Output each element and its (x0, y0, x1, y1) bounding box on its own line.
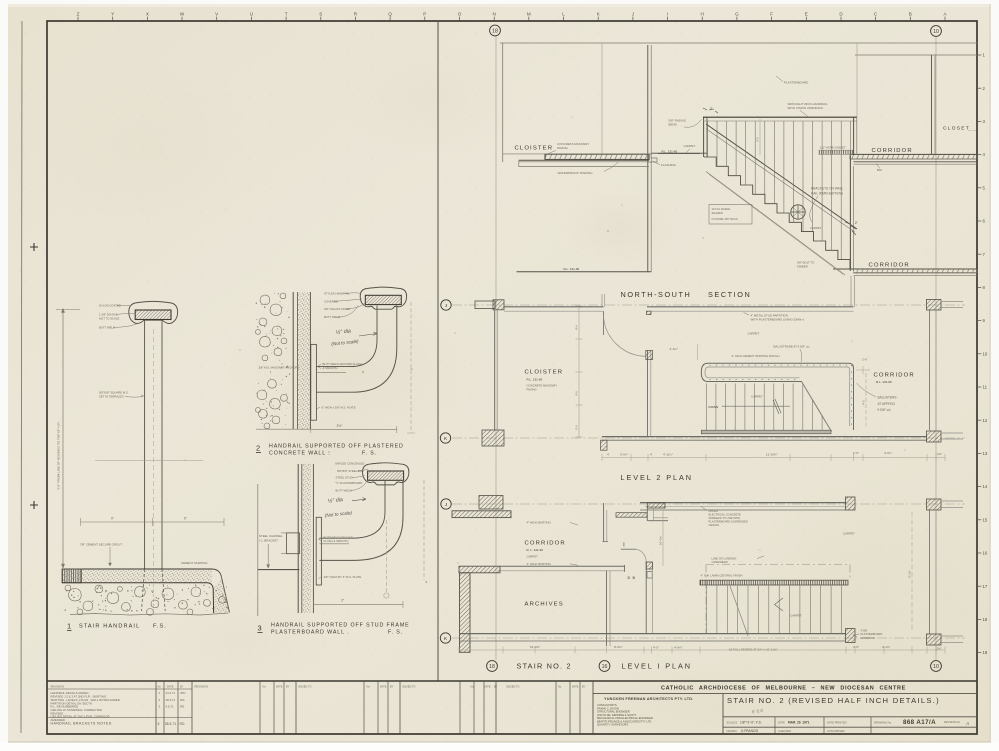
svg-text:CONCRETE WALL .: CONCRETE WALL . (269, 451, 331, 457)
svg-text:KIMBER: KIMBER (797, 264, 808, 268)
svg-text:3½": 3½" (337, 424, 344, 428)
svg-text:CORRIDOR: CORRIDOR (872, 148, 913, 154)
svg-text:BRACKETS ON WALL: BRACKETS ON WALL (811, 187, 844, 191)
svg-text:16: 16 (602, 664, 608, 670)
svg-text:T: T (285, 11, 288, 16)
svg-text:FLASHING: FLASHING (661, 163, 677, 167)
svg-text:10: 10 (933, 664, 939, 670)
svg-text:8'-6⅝": 8'-6⅝" (614, 645, 622, 649)
svg-text:QUANTITY SURVEYORS: QUANTITY SURVEYORS (597, 723, 628, 727)
svg-text:9": 9" (184, 517, 187, 521)
svg-text:SECTION: SECTION (708, 290, 751, 299)
svg-text:BUTT WELD: BUTT WELD (336, 489, 352, 493)
svg-text:2: 2 (256, 444, 260, 453)
svg-text:16 FUL RADIAL: 16 FUL RADIAL (712, 207, 732, 211)
svg-text:13: 13 (983, 451, 988, 456)
svg-text:4" HIGH CEMENT SKIRTING ROU: 4" HIGH CEMENT SKIRTING ROUGH (732, 354, 780, 358)
svg-text:4"(W): 4"(W) (861, 629, 868, 633)
svg-text:4" HIGH SKIRTING: 4" HIGH SKIRTING (527, 562, 551, 566)
svg-text:HANDRAIL BRACKETS NOTED: HANDRAIL BRACKETS NOTED (51, 722, 112, 726)
svg-text:4: 4 (158, 722, 160, 726)
svg-text:1/2" HOPE GASKET: 1/2" HOPE GASKET (820, 145, 846, 149)
svg-text:D.FRANCIS: D.FRANCIS (741, 729, 758, 733)
svg-text:D B: D B (628, 576, 636, 580)
svg-text:18: 18 (492, 28, 498, 34)
svg-text:STAIR NO. 2: STAIR NO. 2 (517, 662, 572, 671)
svg-text:11'-10⅛": 11'-10⅛" (766, 453, 778, 457)
svg-text:RD: RD (180, 705, 184, 709)
svg-text:9 5/8" c/c: 9 5/8" c/c (878, 408, 892, 412)
svg-text:RD: RD (180, 722, 185, 726)
svg-text:18: 18 (983, 617, 988, 622)
svg-text:16 FULL RISERS AT 9⅝" =: 16 FULL RISERS AT 9⅝" = 11'-11⅝" (729, 648, 777, 652)
svg-text:DATE: DATE (167, 686, 174, 689)
svg-text:CEMENT SKIRTING: CEMENT SKIRTING (181, 561, 208, 565)
svg-text:ISSUED TO: ISSUED TO (402, 686, 415, 689)
svg-text:2⅝": 2⅝" (937, 646, 942, 650)
svg-text:NORTH-SOUTH: NORTH-SOUTH (621, 290, 692, 299)
svg-text:CHECKED: CHECKED (778, 729, 791, 733)
svg-text:A: A (965, 721, 969, 726)
svg-text:4'-6: 4'-6 (862, 400, 866, 405)
svg-text:Y: Y (111, 11, 114, 16)
svg-text:Q: Q (388, 11, 392, 16)
svg-text:AUTHORISED: AUTHORISED (827, 729, 845, 733)
svg-text:STAIR HANDRAIL: STAIR HANDRAIL (79, 624, 140, 630)
svg-text:PAVING: PAVING (557, 146, 569, 150)
svg-text:FLUSH & SMOOTH: FLUSH & SMOOTH (324, 539, 349, 543)
svg-text:AT APPROX: AT APPROX (878, 402, 897, 406)
svg-text:DRAWING No.: DRAWING No. (874, 720, 892, 724)
svg-text:BEND: BEND (669, 123, 678, 127)
svg-text:H: H (701, 11, 704, 16)
svg-text:CLOISTER: CLOISTER (525, 370, 564, 376)
svg-text:DATE: DATE (484, 686, 491, 689)
svg-text:6'-1⅝: 6'-1⅝ (908, 570, 912, 578)
svg-text:F.S.: F.S. (153, 624, 167, 630)
svg-text:14.4.71: 14.4.71 (166, 691, 176, 695)
svg-text:P: P (423, 11, 426, 16)
svg-text:4'-1⅝": 4'-1⅝" (882, 645, 890, 649)
svg-text:LEVEL 2 PLAN: LEVEL 2 PLAN (621, 473, 693, 482)
svg-text:BLK: BLK (877, 168, 882, 172)
svg-text:16: 16 (983, 551, 988, 556)
svg-text:4'-0": 4'-0" (853, 645, 859, 649)
svg-text:3'-0: 3'-0 (756, 137, 760, 142)
svg-text:REVISION: REVISION (195, 685, 208, 689)
svg-text:DRAWN: DRAWN (727, 729, 737, 733)
svg-text:15: 15 (983, 517, 988, 522)
svg-text:1: 1 (67, 622, 71, 631)
svg-text:4'-11¾": 4'-11¾" (663, 453, 673, 457)
svg-text:10'-6¾: 10'-6¾ (659, 536, 663, 545)
svg-text:ISSUED TO: ISSUED TO (506, 686, 519, 689)
svg-text:WITH PLASTERBOARD LINING (D: WITH PLASTERBOARD LINING (DWN+) (751, 318, 804, 322)
svg-text:L: L (562, 11, 565, 16)
svg-text:HANDRAIL SUPPORTED OFF P: HANDRAIL SUPPORTED OFF PLASTERED (269, 444, 404, 450)
svg-text:DATE PRINTED: DATE PRINTED (827, 720, 847, 724)
svg-text:G: G (735, 11, 739, 16)
svg-text:SET IN TERRAZZO: SET IN TERRAZZO (99, 395, 125, 399)
svg-text:12: 12 (983, 418, 988, 423)
svg-text:JPD: JPD (180, 691, 185, 695)
svg-text:6" HIGH x 3/8" M.S. PLATE: 6" HIGH x 3/8" M.S. PLATE (322, 405, 356, 409)
svg-text:4'-6: 4'-6 (575, 391, 579, 396)
svg-text:S: S (319, 11, 322, 16)
svg-text:CARPET: CARPET (843, 532, 855, 536)
svg-text:28.5.71: 28.5.71 (165, 722, 176, 726)
svg-text:CONSULTANTS: CONSULTANTS (597, 703, 617, 707)
svg-text:3: 3 (258, 624, 262, 633)
svg-text:I: I (667, 11, 668, 16)
svg-text:14: 14 (983, 484, 988, 489)
svg-text:CATHOLIC ARCHDIOCESE OF: CATHOLIC ARCHDIOCESE OF MELBOURNE – NEW … (661, 685, 906, 691)
svg-text:4'-0": 4'-0" (653, 646, 659, 650)
svg-text:CARPET: CARPET (810, 226, 822, 230)
svg-text:OUTSIDE 135° BACK: OUTSIDE 135° BACK (712, 217, 739, 221)
svg-text:OVERHEAD: OVERHEAD (712, 560, 728, 564)
svg-text:16'-0⅜": 16'-0⅜" (530, 645, 540, 649)
svg-text:BUTT WELD: BUTT WELD (99, 326, 115, 330)
svg-text:PAVING: PAVING (527, 387, 537, 391)
svg-text:PLASTERBOARD: PLASTERBOARD (861, 632, 883, 636)
svg-text:3'-0¾": 3'-0¾" (620, 453, 628, 457)
svg-text:NOT TO SCALE: NOT TO SCALE (99, 316, 119, 320)
svg-text:4'-6¾": 4'-6¾" (670, 347, 678, 351)
svg-text:B: B (909, 11, 912, 16)
svg-text:½" PLASTERBOARD: ½" PLASTERBOARD (336, 481, 363, 485)
svg-text:3/8" THICK BY 6" M.S. PLATE: 3/8" THICK BY 6" M.S. PLATE (324, 575, 362, 579)
svg-text:CARPET: CARPET (751, 395, 763, 399)
svg-text:CORRIDOR: CORRIDOR (869, 263, 910, 269)
svg-text:4" THK LAMIN CENTRAL FINISH: 4" THK LAMIN CENTRAL FINISH (701, 573, 743, 577)
svg-text:11: 11 (983, 385, 988, 390)
svg-text:CARPET: CARPET (527, 555, 539, 559)
svg-text:W: W (180, 11, 185, 16)
svg-text:CARPET: CARPET (748, 332, 760, 336)
svg-text:U: U (250, 11, 253, 16)
svg-text:REVISION: REVISION (51, 685, 64, 689)
svg-text:4'-0¾": 4'-0¾" (884, 451, 892, 455)
svg-text:SCREEDS TO LINE WITH: SCREEDS TO LINE WITH (709, 516, 741, 520)
svg-text:DOWN: DOWN (709, 405, 719, 409)
svg-text:4'-6" FROM LINE OF NOSINGS: 4'-6" FROM LINE OF NOSINGS TO TOP OF H.R… (57, 421, 61, 490)
svg-text:J: J (632, 11, 634, 16)
svg-text:17: 17 (983, 584, 988, 589)
svg-text:SCALES: SCALES (727, 720, 738, 724)
svg-text:PLASTERBOARD: PLASTERBOARD (784, 81, 809, 85)
svg-text:2': 2' (855, 221, 858, 225)
svg-text:19: 19 (983, 650, 988, 655)
svg-text:F. S.: F. S. (388, 630, 403, 636)
svg-text:CLOSET: CLOSET (943, 126, 970, 132)
svg-text:4.5.71: 4.5.71 (166, 705, 174, 709)
svg-text:BY: BY (180, 686, 184, 689)
svg-text:F: F (770, 11, 773, 16)
svg-text:ELECTRICAL CONCRETE: ELECTRICAL CONCRETE (709, 512, 742, 516)
svg-text:BALUSTERS: BALUSTERS (878, 395, 897, 399)
svg-text:BY: BY (582, 686, 586, 689)
svg-text:CORRIDOR: CORRIDOR (874, 373, 915, 379)
svg-text:WATERPROOF TANKING: WATERPROOF TANKING (558, 171, 594, 175)
svg-text:STAIR NO. 2 (REVISED HALF: STAIR NO. 2 (REVISED HALF INCH DETAILS.) (727, 696, 940, 705)
svg-text:R.L. 121-90: R.L. 121-90 (564, 267, 580, 271)
svg-text:ARCHIVES: ARCHIVES (525, 602, 564, 608)
svg-text:CLOISTER: CLOISTER (515, 146, 554, 152)
svg-text:R.L. 131-60: R.L. 131-60 (527, 377, 543, 381)
svg-text:9": 9" (111, 517, 114, 521)
svg-text:PLASTERBOARD SUSPENDED: PLASTERBOARD SUSPENDED (709, 520, 748, 524)
svg-text:REVISION No.: REVISION No. (944, 721, 961, 724)
svg-text:10: 10 (933, 29, 939, 35)
svg-text:HANDRAIL SUPPORTED OFF S: HANDRAIL SUPPORTED OFF STUD FRAME (271, 622, 410, 628)
svg-text:BY: BY (494, 686, 498, 689)
svg-text:CARPET: CARPET (684, 144, 696, 148)
svg-text:M: M (527, 11, 531, 16)
svg-text:X: X (146, 11, 149, 16)
svg-text:MECHANICAL AND ELECTRICAL E: MECHANICAL AND ELECTRICAL ENGINEER (597, 716, 653, 720)
svg-text:LEVEL I PLAN: LEVEL I PLAN (622, 662, 692, 671)
svg-text:ISSUED TO: ISSUED TO (298, 686, 311, 689)
svg-text:MAR. 29. 1971: MAR. 29. 1971 (788, 721, 810, 725)
svg-text:COVERING: COVERING (861, 636, 875, 640)
svg-text:DATE: DATE (380, 686, 387, 689)
svg-text:RAIL 90MM BATTENS: RAIL 90MM BATTENS (811, 192, 843, 196)
svg-text:DATE: DATE (572, 686, 579, 689)
svg-text:WA: WA (180, 698, 185, 702)
svg-text:PLASTERBOARD WALL .: PLASTERBOARD WALL . (271, 630, 350, 636)
svg-text:4'-6: 4'-6 (575, 325, 579, 330)
svg-text:DATE: DATE (276, 686, 283, 689)
svg-text:STRUCTURAL ENGINEER: STRUCTURAL ENGINEER (597, 709, 630, 713)
svg-text:DATE: DATE (778, 720, 785, 724)
svg-text:UNFLED CONCEALED: UNFLED CONCEALED (335, 461, 364, 465)
svg-text:E: E (805, 11, 808, 16)
svg-text:& SMOOTH: & SMOOTH (323, 366, 338, 370)
svg-text:3/8" M.S. MASONRY ANCHORS: 3/8" M.S. MASONRY ANCHORS (259, 366, 300, 370)
svg-text:WITH VISION OPENINGS: WITH VISION OPENINGS (788, 106, 823, 110)
svg-text:Z: Z (77, 11, 80, 16)
svg-text:R. L. 121-90: R. L. 121-90 (527, 548, 544, 552)
svg-text:CEILING: CEILING (709, 523, 720, 527)
svg-text:2': 2' (710, 107, 713, 111)
svg-text:4'-6⅝": 4'-6⅝" (674, 646, 682, 650)
svg-text:CORRIDOR: CORRIDOR (525, 541, 566, 547)
svg-text:10: 10 (983, 351, 988, 356)
svg-text:UPPER: UPPER (709, 509, 718, 513)
svg-text:F. S.: F. S. (362, 451, 377, 457)
svg-text:2'-6": 2'-6" (862, 358, 868, 362)
svg-text:7/8" CEMENT SECURE GROUT: 7/8" CEMENT SECURE GROUT (80, 542, 122, 546)
svg-text:SHARED: SHARED (712, 211, 723, 215)
svg-text:BY: BY (286, 686, 290, 689)
svg-text:R.L. 131-60: R.L. 131-60 (876, 380, 892, 384)
svg-text:O: O (458, 11, 462, 16)
svg-text:2'-0": 2'-0" (853, 451, 859, 455)
svg-text:5/8"/5/8" STEEL BAR: 5/8"/5/8" STEEL BAR (337, 469, 364, 473)
svg-text:868 A17/A: 868 A17/A (903, 719, 936, 726)
svg-text:2'-6: 2'-6 (575, 425, 579, 430)
svg-text:CARPET: CARPET (790, 614, 802, 618)
svg-text:STEEL STUD: STEEL STUD (336, 476, 353, 480)
svg-text:1/8"=1'-0", F.S.: 1/8"=1'-0", F.S. (740, 721, 762, 725)
svg-text:BY: BY (390, 686, 394, 689)
svg-text:YUNCKEN FREEMAN ARCHITECTS PTY: YUNCKEN FREEMAN ARCHITECTS PTY. LTD. (604, 697, 693, 701)
svg-text:N: N (493, 11, 496, 16)
svg-text:4" HIGH SKIRTING: 4" HIGH SKIRTING (527, 521, 551, 525)
svg-text:2⅛": 2⅛" (937, 452, 942, 456)
svg-text:I.C. BRACKET: I.C. BRACKET (259, 538, 278, 542)
svg-text:BALUSTRADE AT 9 5/8" c/c: BALUSTRADE AT 9 5/8" c/c (774, 345, 811, 349)
svg-text:18: 18 (489, 664, 495, 670)
svg-text:28.4.71: 28.4.71 (166, 698, 176, 702)
